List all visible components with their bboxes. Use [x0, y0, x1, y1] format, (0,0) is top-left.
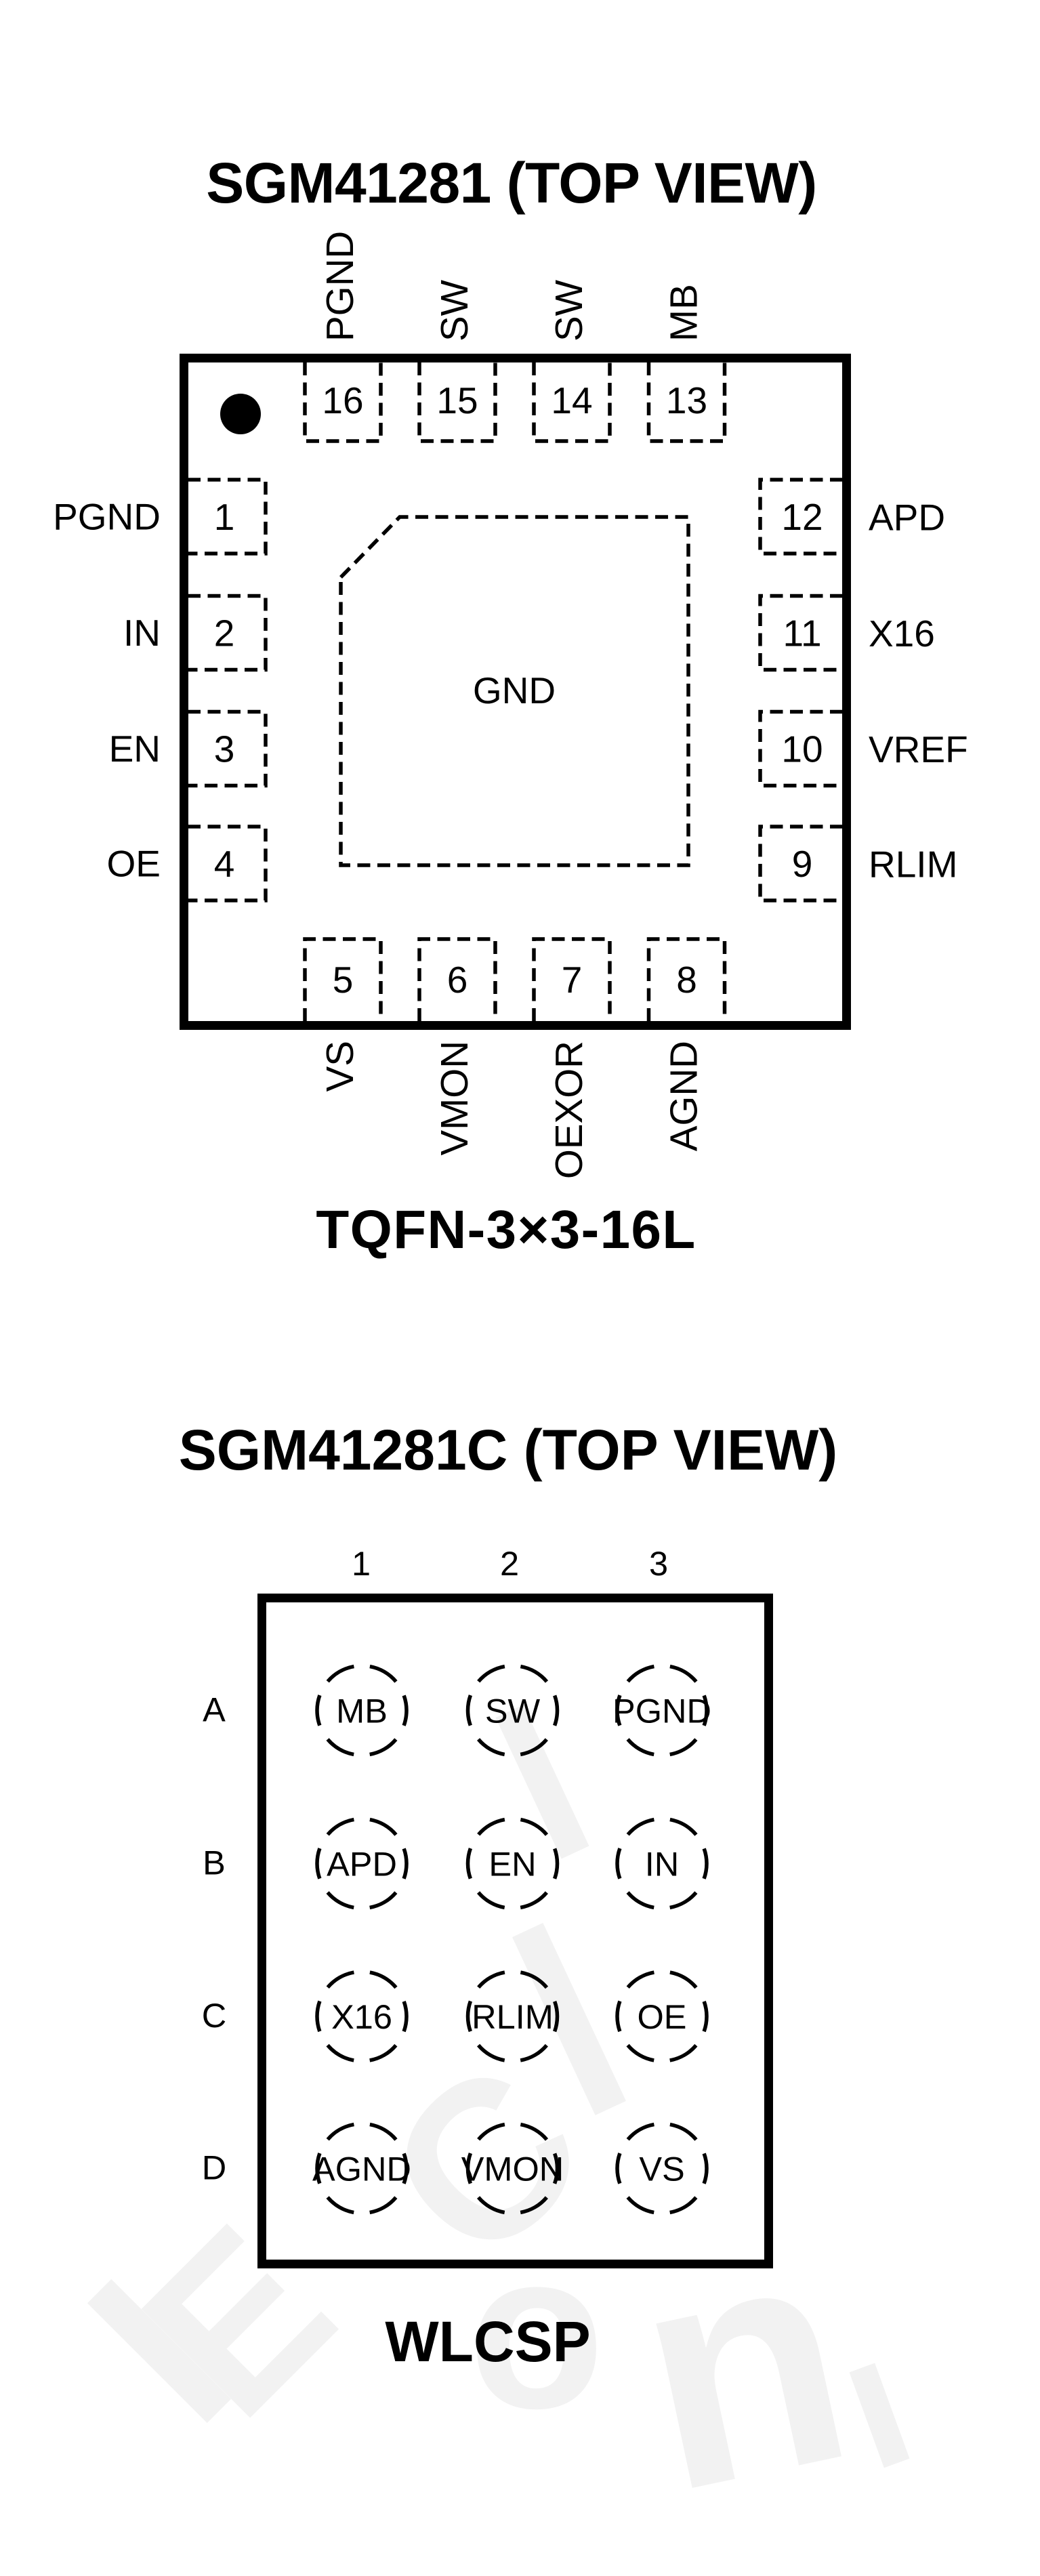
svg-text:OEXOR: OEXOR: [547, 1041, 590, 1179]
svg-text:16: 16: [322, 379, 363, 421]
svg-text:MB: MB: [336, 1692, 388, 1730]
svg-text:X16: X16: [869, 612, 935, 655]
svg-text:VS: VS: [639, 2150, 684, 2188]
svg-text:10: 10: [781, 728, 823, 770]
svg-text:6: 6: [447, 959, 468, 1001]
svg-text:PGND: PGND: [318, 231, 361, 341]
svg-text:8: 8: [676, 959, 697, 1001]
svg-text:PGND: PGND: [612, 1692, 711, 1730]
svg-text:GND: GND: [473, 669, 556, 711]
svg-text:SGM41281C (TOP VIEW): SGM41281C (TOP VIEW): [179, 1418, 838, 1482]
svg-text:SW: SW: [433, 279, 476, 341]
svg-text:2: 2: [214, 612, 235, 655]
svg-text:VMON: VMON: [433, 1041, 476, 1156]
svg-text:13: 13: [666, 379, 707, 421]
svg-text:RLIM: RLIM: [472, 1997, 554, 2036]
svg-text:A: A: [203, 1690, 226, 1729]
svg-text:n: n: [610, 2170, 875, 2558]
svg-text:9: 9: [792, 843, 813, 885]
svg-text:14: 14: [551, 379, 592, 421]
svg-text:X16: X16: [331, 1997, 392, 2036]
svg-text:SW: SW: [547, 279, 590, 341]
svg-text:15: 15: [436, 379, 478, 421]
svg-text:VMON: VMON: [461, 2150, 564, 2188]
svg-text:1: 1: [352, 1544, 371, 1583]
svg-text:1: 1: [214, 496, 235, 538]
svg-text:AGND: AGND: [312, 2150, 411, 2188]
svg-text:11: 11: [783, 612, 821, 655]
svg-text:APD: APD: [327, 1845, 397, 1884]
svg-text:5: 5: [333, 959, 354, 1001]
svg-text:SGM41281 (TOP VIEW): SGM41281 (TOP VIEW): [206, 151, 816, 215]
svg-text:WLCSP: WLCSP: [385, 2310, 590, 2373]
svg-text:VS: VS: [318, 1041, 361, 1092]
svg-text:B: B: [203, 1844, 226, 1882]
svg-text:PGND: PGND: [53, 496, 161, 538]
svg-text:4: 4: [214, 843, 235, 885]
svg-text:RLIM: RLIM: [869, 844, 957, 886]
svg-text:OE: OE: [107, 843, 161, 885]
svg-text:APD: APD: [869, 497, 945, 539]
svg-text:OE: OE: [638, 1997, 687, 2036]
svg-text:7: 7: [562, 959, 583, 1001]
svg-text:C: C: [202, 1996, 226, 2035]
svg-text:IN: IN: [645, 1845, 680, 1884]
svg-text:3: 3: [214, 728, 235, 770]
svg-text:3: 3: [649, 1544, 668, 1583]
svg-text:SW: SW: [485, 1692, 541, 1730]
svg-text:AGND: AGND: [663, 1041, 705, 1151]
svg-text:12: 12: [781, 496, 823, 538]
svg-text:EN: EN: [488, 1845, 536, 1884]
svg-text:2: 2: [500, 1544, 519, 1583]
svg-text:EN: EN: [109, 728, 161, 770]
svg-text:TQFN-3×3-16L: TQFN-3×3-16L: [316, 1199, 696, 1260]
svg-text:MB: MB: [663, 284, 705, 341]
svg-text:IN: IN: [123, 612, 161, 654]
svg-text:D: D: [202, 2148, 226, 2187]
svg-text:VREF: VREF: [869, 728, 968, 770]
